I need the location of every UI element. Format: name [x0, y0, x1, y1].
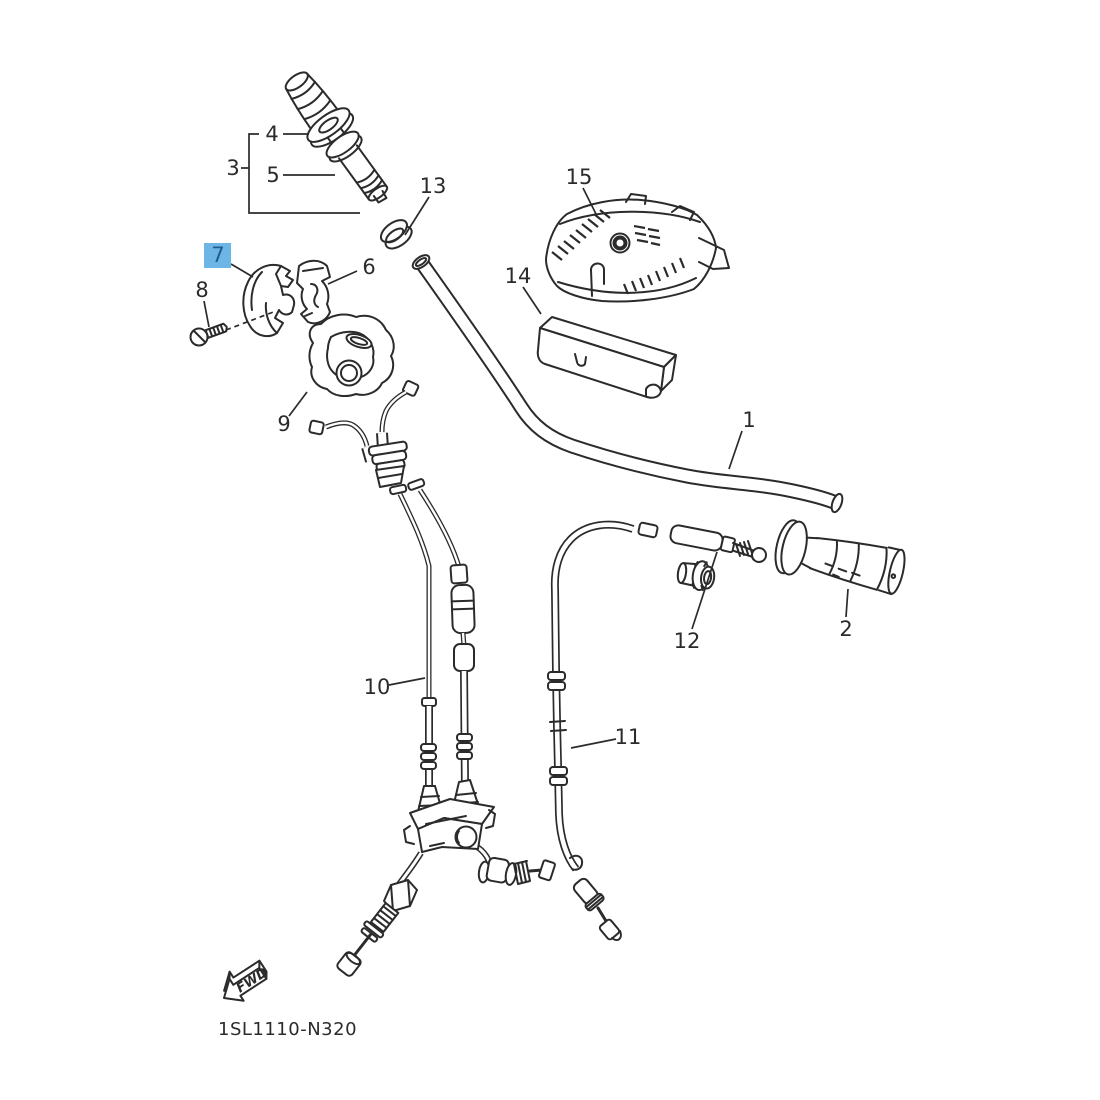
part-label-15: 15 — [566, 165, 596, 214]
part-label-5: 5 — [266, 163, 335, 187]
cable-junction-drawing — [336, 799, 556, 977]
part-number-14: 14 — [505, 264, 532, 288]
part-label-6: 6 — [328, 255, 376, 284]
part-number-4: 4 — [265, 122, 278, 146]
collar-drawing — [377, 216, 415, 253]
throttle-housing-drawing — [309, 315, 393, 396]
throttle-cables-drawing — [309, 380, 480, 816]
part-number-12: 12 — [674, 629, 701, 653]
part-number-2: 2 — [839, 617, 852, 641]
part-label-14: 14 — [505, 264, 541, 314]
part-number-1: 1 — [742, 408, 755, 432]
left-grip-assembly-drawing — [273, 62, 403, 215]
part-number-10: 10 — [364, 675, 391, 699]
part-label-11: 11 — [571, 725, 641, 749]
part-number-9: 9 — [277, 412, 290, 436]
part-number-11: 11 — [615, 725, 642, 749]
part-number-8: 8 — [195, 278, 208, 302]
exploded-parts-diagram: 1 2 3 4 5 6 7 8 9 10 11 12 — [0, 0, 1100, 1100]
clutch-cable-drawing — [548, 522, 766, 940]
bar-pad-drawing — [538, 317, 676, 398]
part-label-1: 1 — [729, 408, 756, 469]
part-number-13: 13 — [420, 174, 447, 198]
part-number-3: 3 — [226, 156, 239, 180]
part-number-7: 7 — [211, 243, 224, 267]
part-label-4: 4 — [265, 122, 309, 146]
part-number-5: 5 — [266, 163, 279, 187]
part-label-9: 9 — [277, 392, 307, 436]
bar-cover-drawing — [546, 194, 729, 302]
part-label-7-highlighted: 7 — [204, 243, 253, 277]
right-grip-drawing — [771, 518, 909, 600]
part-label-2: 2 — [839, 589, 852, 641]
part-label-13: 13 — [405, 174, 446, 235]
drawing-code: 1SL1110-N320 — [218, 1019, 357, 1040]
fwd-direction-arrow: FWD — [214, 955, 274, 1009]
part-number-6: 6 — [362, 255, 375, 279]
part-number-15: 15 — [566, 165, 593, 189]
clamp-lower-half-drawing — [297, 261, 330, 324]
part-label-10: 10 — [364, 675, 425, 699]
part-label-8: 8 — [195, 278, 209, 327]
parts-diagram-canvas: 1 2 3 4 5 6 7 8 9 10 11 12 — [0, 0, 1100, 1100]
